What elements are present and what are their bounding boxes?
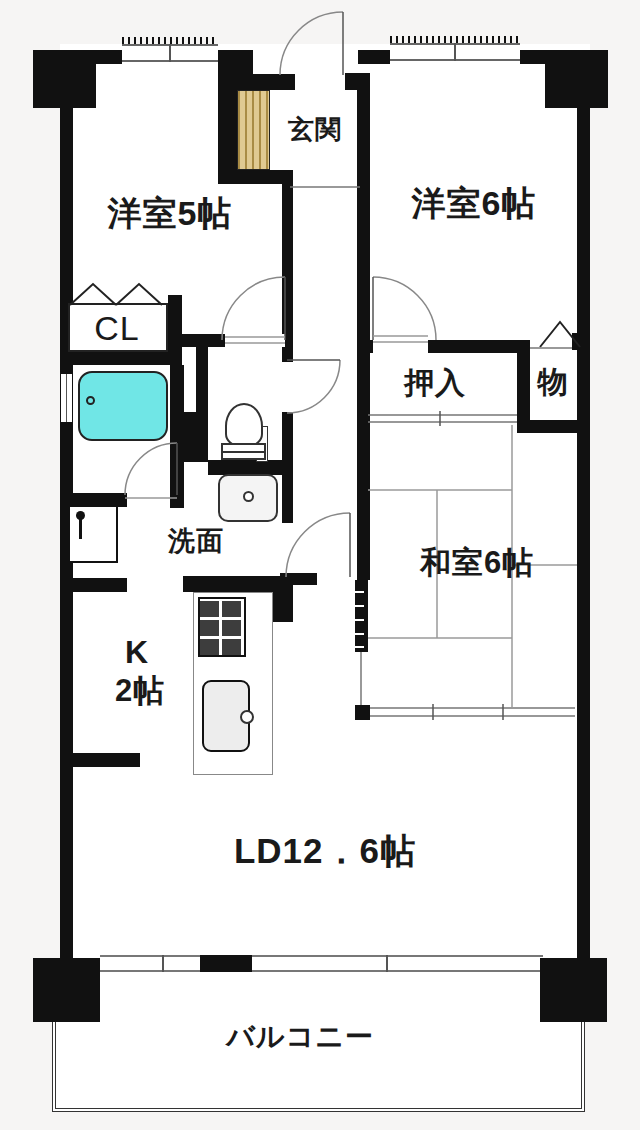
room-label-mono: 物 <box>538 362 569 403</box>
fusuma-handle <box>433 704 503 720</box>
folding-door-closet <box>70 284 162 305</box>
room-label-washitsu6: 和室6帖 <box>420 542 534 584</box>
line-symbols <box>0 0 640 1130</box>
room-label-oshiire: 押入 <box>404 363 466 404</box>
room-label-kitchen-size: 2帖 <box>115 670 165 712</box>
door-swing-yoshitsu6 <box>373 277 436 340</box>
room-label-yoshitsu6: 洋室6帖 <box>412 181 537 227</box>
room-label-ld: LD12．6帖 <box>234 828 416 875</box>
door-swing-entrance <box>280 12 343 75</box>
sliding-panel-hatch <box>355 592 364 647</box>
door-swing-bath <box>125 443 177 495</box>
fusuma-oshiire <box>368 415 517 422</box>
door-threshold <box>225 337 285 343</box>
door-swing-yoshitsu5 <box>222 277 285 340</box>
floor-plan: 洋室5帖 洋室6帖 玄関 CL 押入 物 和室6帖 洗面 K 2帖 LD12．6… <box>0 0 640 1130</box>
room-label-yoshitsu5: 洋室5帖 <box>108 191 233 237</box>
room-label-senmen: 洗面 <box>168 523 224 559</box>
room-label-closet: CL <box>94 309 139 348</box>
room-label-genkan: 玄関 <box>288 112 342 147</box>
room-label-kitchen-k: K <box>125 634 149 671</box>
door-threshold <box>373 336 428 342</box>
room-label-balcony: バルコニー <box>226 1018 374 1056</box>
folding-door-mono <box>540 322 580 347</box>
door-swing-toilet <box>287 360 340 413</box>
fusuma-washitsu <box>370 708 575 716</box>
door-swing-ld <box>286 513 350 577</box>
